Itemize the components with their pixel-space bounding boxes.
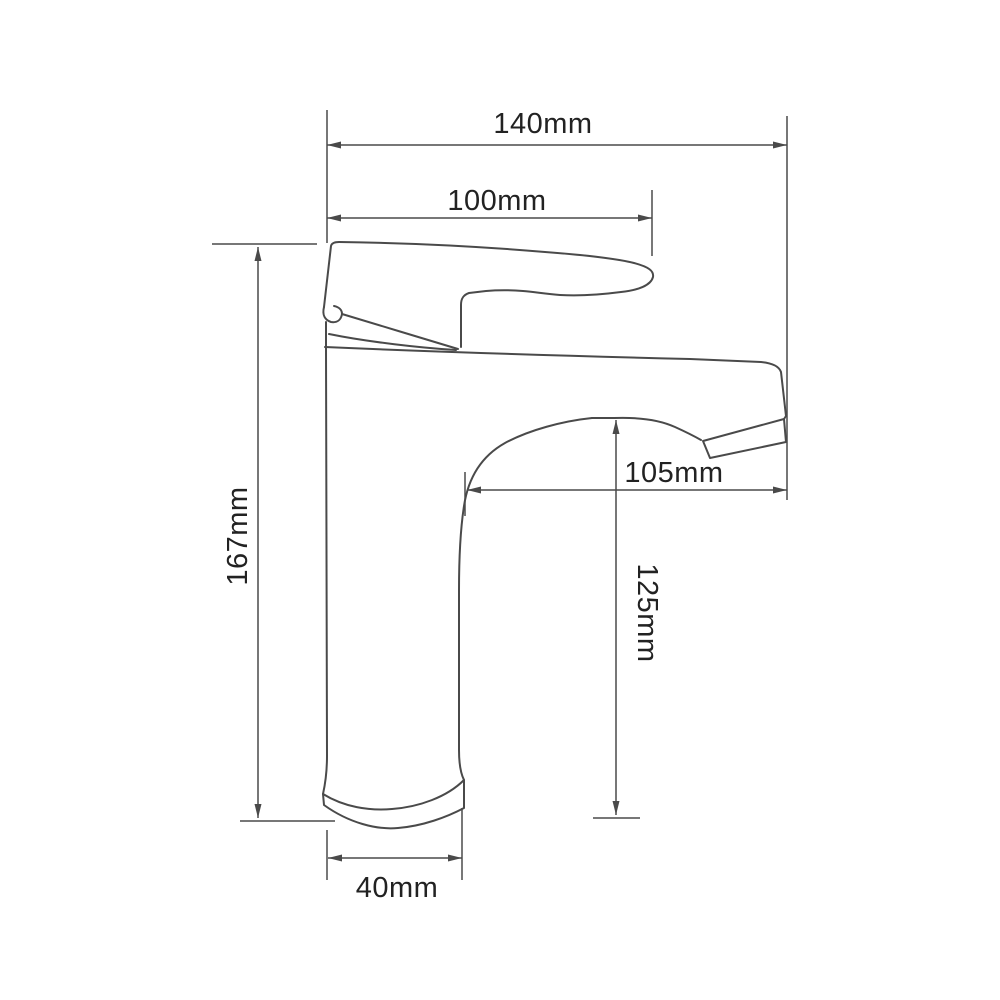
arrow-right-icon [638, 215, 652, 222]
arrow-right-icon [448, 855, 462, 862]
arrow-up-icon [255, 247, 262, 261]
arrow-right-icon [773, 487, 787, 494]
handle-pivot-curl [323, 306, 342, 322]
dim-label-140mm: 140mm [493, 108, 592, 140]
dimension-base-width: 40mm [328, 855, 462, 905]
body-left-edge [323, 322, 327, 794]
arrow-left-icon [327, 142, 341, 149]
dim-label-125mm: 125mm [631, 563, 663, 662]
aerator-band [703, 419, 786, 458]
arrow-right-icon [773, 142, 787, 149]
spout-underside [592, 418, 701, 440]
dim-label-167mm: 167mm [222, 486, 254, 585]
arrow-down-icon [255, 804, 262, 818]
base-rim-band [323, 780, 464, 828]
dim-label-105mm: 105mm [624, 457, 723, 489]
arrow-left-icon [328, 855, 342, 862]
dimension-spout-reach: 105mm [467, 457, 787, 494]
dimension-handle-reach: 100mm [327, 185, 652, 222]
faucet-outline [323, 242, 786, 828]
extension-lines [327, 110, 787, 880]
handle-base-wedge-top [342, 314, 458, 349]
body-top-and-spout-edge [325, 347, 786, 419]
body-front-curve [459, 418, 592, 780]
dimension-overall-height: 167mm [212, 244, 335, 821]
arrow-up-icon [613, 420, 620, 434]
dim-label-100mm: 100mm [447, 185, 546, 217]
faucet-dimension-diagram: 140mm 100mm 105mm 125mm [0, 0, 1000, 1000]
dimension-overall-width: 140mm [327, 108, 787, 149]
arrow-down-icon [613, 801, 620, 815]
handle-lever-outline [324, 242, 653, 347]
arrow-left-icon [327, 215, 341, 222]
dim-label-40mm: 40mm [356, 872, 439, 904]
diagram-canvas: 140mm 100mm 105mm 125mm [0, 0, 1000, 1000]
